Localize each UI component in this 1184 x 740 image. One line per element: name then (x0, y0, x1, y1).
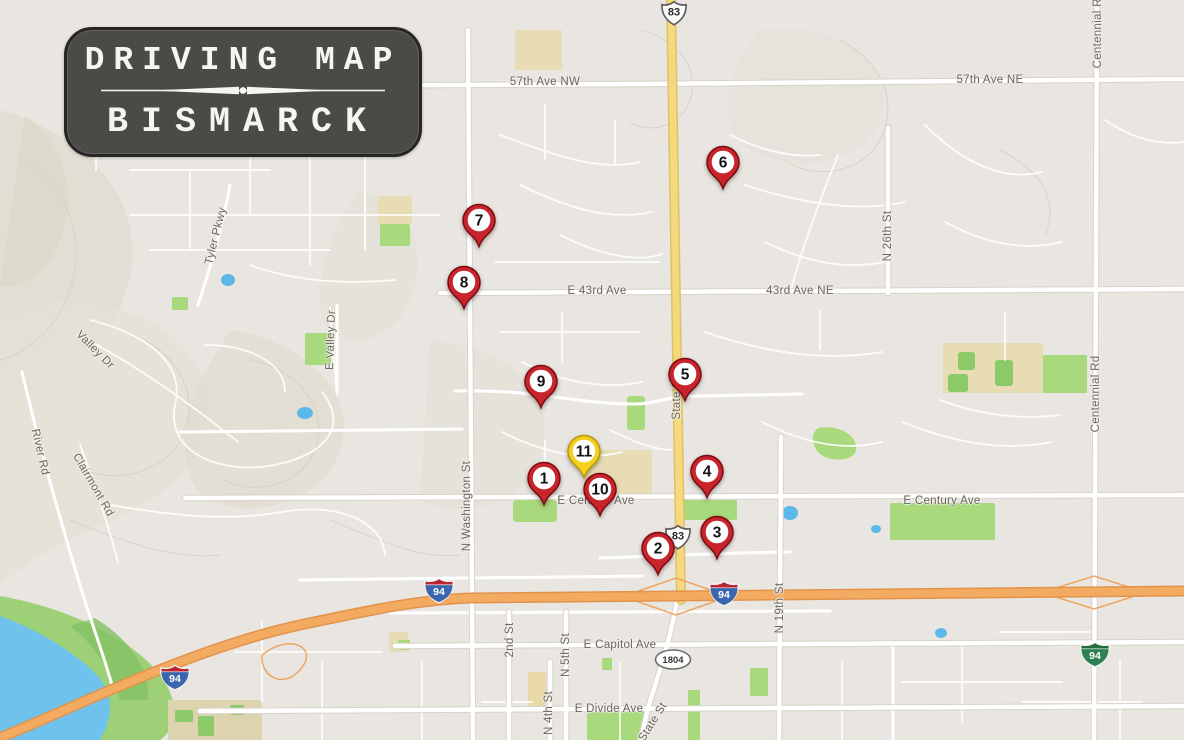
pin-icon: 1 (526, 461, 562, 507)
map-canvas[interactable]: 57th Ave NW57th Ave NEE 43rd Ave43rd Ave… (0, 0, 1184, 740)
map-marker-1[interactable]: 1 (526, 461, 562, 507)
pin-icon: 3 (699, 515, 735, 561)
pin-icon: 9 (523, 364, 559, 410)
marker-number: 2 (654, 541, 663, 558)
map-marker-4[interactable]: 4 (689, 454, 725, 500)
marker-number: 5 (681, 367, 690, 384)
badge-divider-ornament (93, 83, 393, 98)
marker-number: 4 (703, 464, 712, 481)
badge-title-line2: BISMARCK (107, 105, 379, 140)
pin-icon: 7 (461, 203, 497, 249)
pin-icon: 5 (667, 357, 703, 403)
title-badge: DRIVING MAP BISMARCK (64, 27, 422, 157)
marker-number: 11 (576, 444, 593, 461)
marker-number: 9 (537, 374, 546, 391)
marker-number: 10 (591, 482, 608, 499)
marker-number: 3 (713, 525, 722, 542)
marker-number: 8 (460, 275, 469, 292)
map-marker-9[interactable]: 9 (523, 364, 559, 410)
map-marker-6[interactable]: 6 (705, 145, 741, 191)
pin-icon: 4 (689, 454, 725, 500)
map-marker-7[interactable]: 7 (461, 203, 497, 249)
pin-icon: 11 (566, 434, 602, 480)
pin-icon: 2 (640, 531, 676, 577)
marker-number: 1 (540, 471, 549, 488)
map-marker-8[interactable]: 8 (446, 265, 482, 311)
marker-number: 6 (719, 155, 728, 172)
pin-icon: 6 (705, 145, 741, 191)
map-marker-3[interactable]: 3 (699, 515, 735, 561)
pin-icon: 8 (446, 265, 482, 311)
map-marker-5[interactable]: 5 (667, 357, 703, 403)
map-marker-11[interactable]: 11 (566, 434, 602, 480)
map-marker-2[interactable]: 2 (640, 531, 676, 577)
marker-number: 7 (475, 213, 484, 230)
route-us83 (671, 0, 681, 600)
badge-title-line1: DRIVING MAP (85, 44, 402, 77)
